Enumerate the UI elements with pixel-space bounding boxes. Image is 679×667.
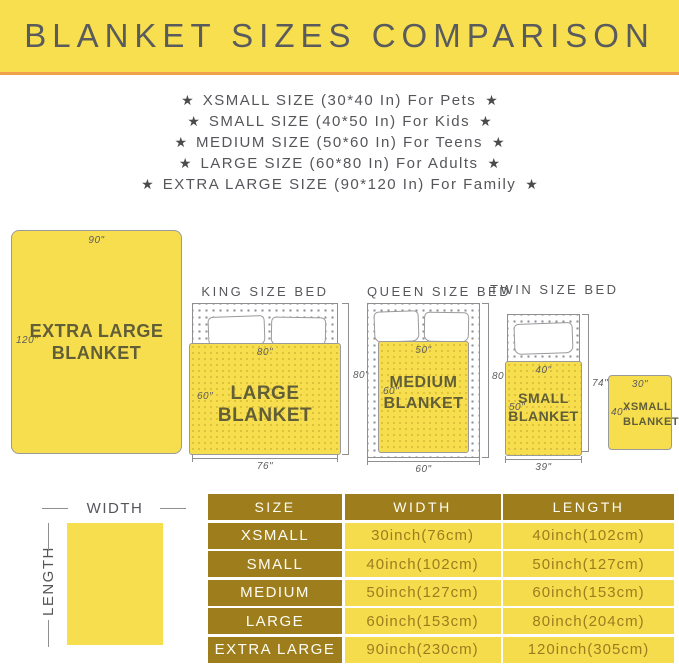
star-icon: ★ bbox=[165, 134, 196, 150]
legend-length-label: LENGTH bbox=[40, 556, 56, 616]
table-row-label: EXTRA LARGE bbox=[208, 637, 342, 663]
star-icon: ★ bbox=[132, 176, 163, 192]
king-width-dim-line bbox=[192, 458, 338, 459]
list-item: ★LARGE SIZE (60*80 In) For Adults★ bbox=[0, 153, 679, 174]
large-blanket-name: LARGE BLANKET bbox=[190, 383, 340, 427]
table-cell-width: 30inch(76cm) bbox=[345, 523, 501, 549]
star-icon: ★ bbox=[476, 92, 507, 108]
size-table: SIZE WIDTH LENGTH XSMALL 30inch(76cm) 40… bbox=[208, 494, 674, 663]
size-list: ★XSMALL SIZE (30*40 In) For Pets★ ★SMALL… bbox=[0, 90, 679, 195]
table-cell-length: 60inch(153cm) bbox=[503, 580, 674, 606]
twin-height-label: 74" bbox=[592, 378, 608, 389]
table-cell-length: 40inch(102cm) bbox=[503, 523, 674, 549]
small-blanket-width-label: 40" bbox=[506, 365, 581, 376]
legend-length-line bbox=[48, 523, 49, 551]
small-blanket: 40" 50" SMALL BLANKET bbox=[505, 361, 582, 456]
medium-blanket-width-label: 50" bbox=[379, 345, 468, 356]
list-item: ★SMALL SIZE (40*50 In) For Kids★ bbox=[0, 111, 679, 132]
king-height-dim-line bbox=[348, 303, 349, 455]
table-cell-width: 90inch(230cm) bbox=[345, 637, 501, 663]
medium-blanket-name: MEDIUM BLANKET bbox=[379, 372, 468, 414]
list-item: ★XSMALL SIZE (30*40 In) For Pets★ bbox=[0, 90, 679, 111]
blanket-sizes-infographic: BLANKET SIZES COMPARISON ★XSMALL SIZE (3… bbox=[0, 0, 679, 667]
table-row-label: XSMALL bbox=[208, 523, 342, 549]
twin-bed-title: TWIN SIZE BED bbox=[490, 282, 596, 297]
xl-width-label: 90" bbox=[12, 235, 181, 246]
table-cell-length: 80inch(204cm) bbox=[503, 608, 674, 634]
queen-pillow bbox=[373, 310, 419, 343]
list-item: ★EXTRA LARGE SIZE (90*120 In) For Family… bbox=[0, 174, 679, 195]
table-cell-length: 120inch(305cm) bbox=[503, 637, 674, 663]
star-icon: ★ bbox=[516, 176, 547, 192]
star-icon: ★ bbox=[479, 155, 510, 171]
king-bed-title: KING SIZE BED bbox=[192, 284, 338, 299]
queen-width-label: 60" bbox=[367, 464, 480, 475]
table-cell-length: 50inch(127cm) bbox=[503, 551, 674, 577]
star-icon: ★ bbox=[178, 113, 209, 129]
legend-width-line bbox=[42, 508, 68, 509]
legend-width-label: WIDTH bbox=[67, 500, 163, 517]
list-item: ★MEDIUM SIZE (50*60 In) For Teens★ bbox=[0, 132, 679, 153]
size-list-label: MEDIUM SIZE (50*60 In) For Teens bbox=[196, 134, 483, 151]
page-title: BLANKET SIZES COMPARISON bbox=[24, 17, 655, 55]
size-list-label: LARGE SIZE (60*80 In) For Adults bbox=[200, 155, 478, 172]
table-row-label: MEDIUM bbox=[208, 580, 342, 606]
small-blanket-name: SMALL BLANKET bbox=[506, 389, 581, 425]
star-icon: ★ bbox=[470, 113, 501, 129]
king-width-label: 76" bbox=[192, 461, 338, 472]
star-icon: ★ bbox=[483, 134, 514, 150]
queen-width-dim-line bbox=[367, 461, 480, 462]
queen-bed-title: QUEEN SIZE BED bbox=[367, 284, 480, 299]
twin-pillow bbox=[513, 322, 573, 355]
xl-blanket-name: EXTRA LARGE BLANKET bbox=[12, 320, 181, 364]
queen-pillow bbox=[424, 312, 470, 343]
twin-height-dim-line bbox=[588, 314, 589, 452]
table-row-label: SMALL bbox=[208, 551, 342, 577]
twin-width-label: 39" bbox=[505, 462, 582, 473]
xsmall-blanket-name: XSMALL BLANKET bbox=[623, 400, 669, 430]
table-cell-width: 40inch(102cm) bbox=[345, 551, 501, 577]
legend-length-line bbox=[48, 620, 49, 647]
size-list-label: EXTRA LARGE SIZE (90*120 In) For Family bbox=[163, 176, 517, 193]
xsmall-width-label: 30" bbox=[609, 379, 671, 390]
size-list-label: XSMALL SIZE (30*40 In) For Pets bbox=[203, 92, 477, 109]
banner: BLANKET SIZES COMPARISON bbox=[0, 0, 679, 75]
twin-width-dim-line bbox=[505, 459, 582, 460]
table-header-length: LENGTH bbox=[503, 494, 674, 520]
table-cell-width: 60inch(153cm) bbox=[345, 608, 501, 634]
legend-blanket-swatch bbox=[67, 523, 163, 645]
size-list-label: SMALL SIZE (40*50 In) For Kids bbox=[209, 113, 470, 130]
table-cell-width: 50inch(127cm) bbox=[345, 580, 501, 606]
table-header-width: WIDTH bbox=[345, 494, 501, 520]
legend-width-line bbox=[160, 508, 186, 509]
extra-large-blanket: 90" 120" EXTRA LARGE BLANKET bbox=[11, 230, 182, 454]
star-icon: ★ bbox=[172, 92, 203, 108]
table-row-label: LARGE bbox=[208, 608, 342, 634]
table-header-size: SIZE bbox=[208, 494, 342, 520]
large-blanket: 80" 60" LARGE BLANKET bbox=[189, 343, 341, 455]
king-pillow bbox=[271, 317, 326, 347]
star-icon: ★ bbox=[170, 155, 201, 171]
xsmall-blanket: 30" 40" XSMALL BLANKET bbox=[608, 375, 672, 450]
medium-blanket: 50" 60" MEDIUM BLANKET bbox=[378, 341, 469, 453]
large-blanket-width-label: 80" bbox=[190, 347, 340, 358]
queen-height-dim-line bbox=[488, 303, 489, 458]
